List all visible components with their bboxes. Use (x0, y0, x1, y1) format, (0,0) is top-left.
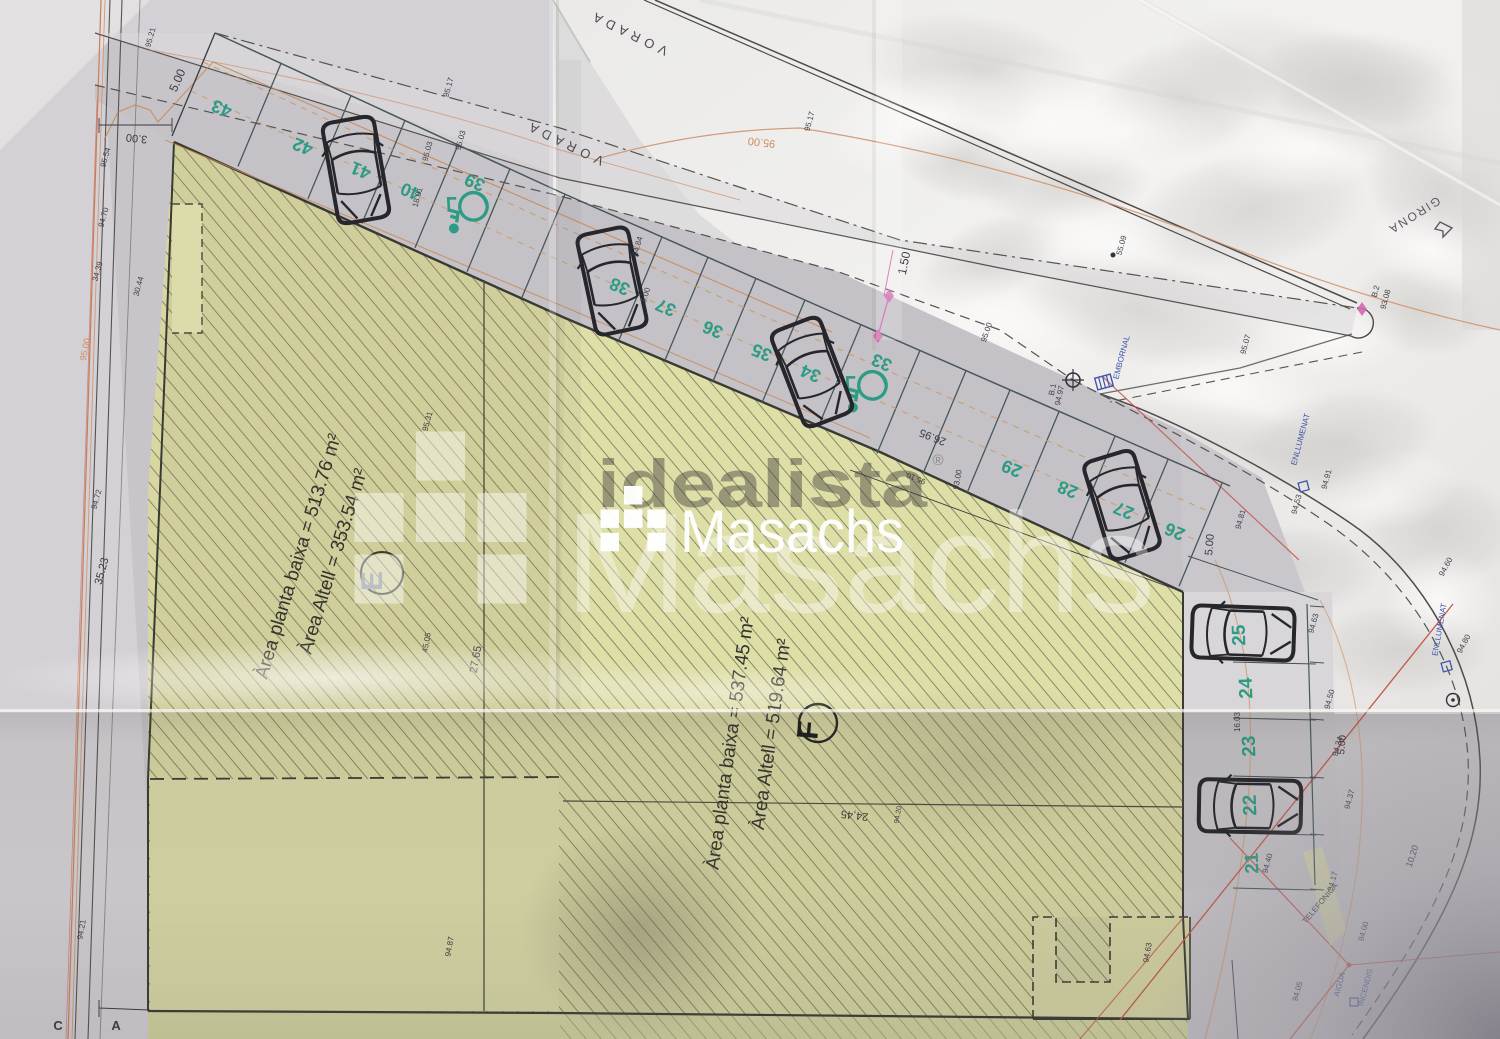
svg-text:®: ® (932, 452, 943, 469)
svg-text:5.00: 5.00 (1203, 534, 1217, 556)
svg-text:Masachs: Masachs (680, 498, 904, 565)
svg-text:24: 24 (1236, 677, 1258, 699)
svg-text:25: 25 (1229, 624, 1251, 646)
svg-text:3.00: 3.00 (125, 131, 148, 145)
